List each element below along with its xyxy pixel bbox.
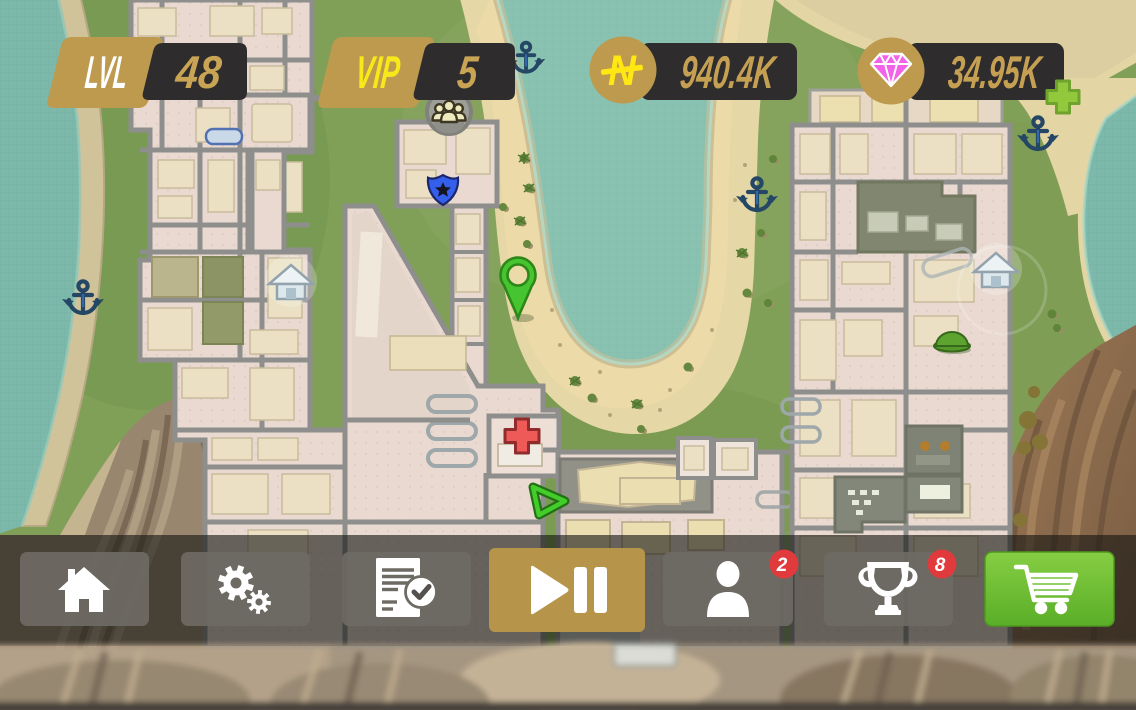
svg-text:2: 2 — [776, 555, 788, 576]
svg-text:48: 48 — [173, 46, 225, 98]
svg-text:8: 8 — [935, 555, 946, 576]
svg-text:34.95K: 34.95K — [946, 46, 1046, 98]
svg-text:VIP: VIP — [353, 46, 403, 98]
svg-text:940.4K: 940.4K — [678, 46, 780, 98]
svg-text:LVL: LVL — [83, 46, 130, 98]
